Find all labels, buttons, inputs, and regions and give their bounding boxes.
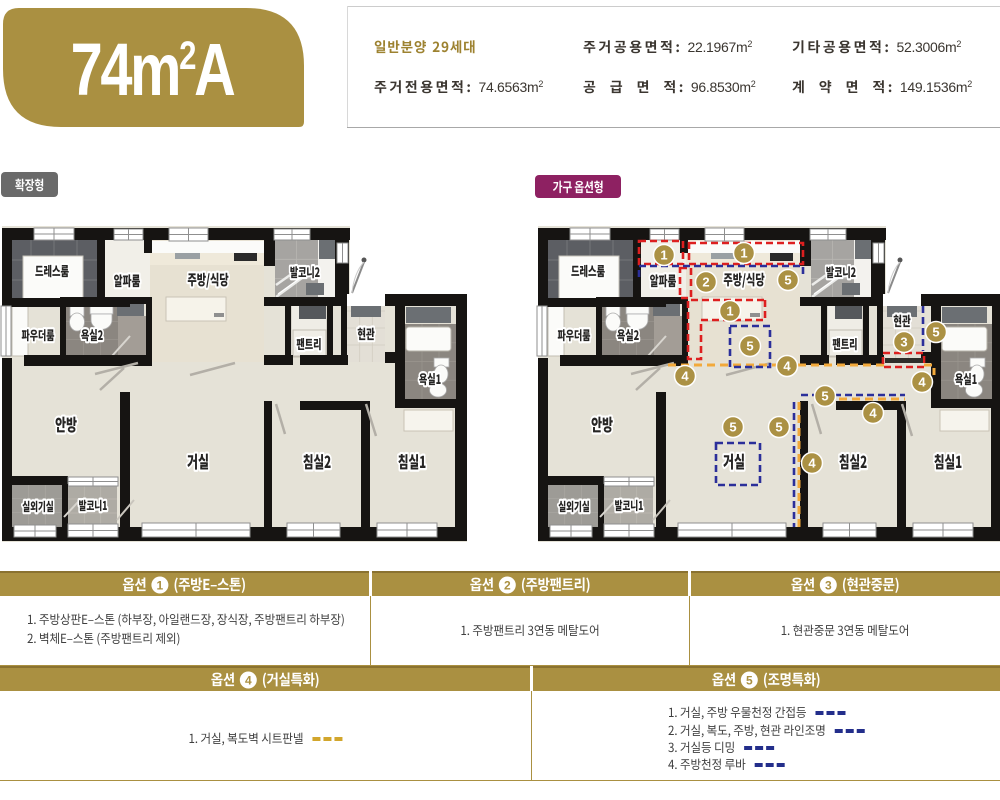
svg-text:5: 5 xyxy=(729,420,736,435)
svg-text:1: 1 xyxy=(726,304,733,319)
svg-text:96.8530m2: 96.8530m2 xyxy=(691,79,756,95)
svg-text:149.1536m2: 149.1536m2 xyxy=(900,79,972,95)
svg-text:52.3006m2: 52.3006m2 xyxy=(897,39,962,55)
svg-text:1: 1 xyxy=(740,246,747,261)
svg-text:4: 4 xyxy=(783,359,791,374)
svg-text:4: 4 xyxy=(918,375,926,390)
svg-text:3: 3 xyxy=(900,335,907,350)
svg-text:22.1967m2: 22.1967m2 xyxy=(688,39,753,55)
svg-text:1: 1 xyxy=(660,248,667,263)
svg-text:5: 5 xyxy=(775,420,782,435)
svg-text:74.6563m2: 74.6563m2 xyxy=(479,79,544,95)
svg-text:5: 5 xyxy=(932,325,939,340)
svg-text:5: 5 xyxy=(784,273,791,288)
svg-text:74m2A: 74m2A xyxy=(71,29,235,112)
svg-text:2: 2 xyxy=(504,579,511,593)
svg-text:5: 5 xyxy=(821,389,828,404)
svg-text:4: 4 xyxy=(869,406,877,421)
svg-text:1: 1 xyxy=(157,579,164,593)
svg-text:4: 4 xyxy=(681,369,689,384)
svg-text:5: 5 xyxy=(746,339,753,354)
svg-text:5: 5 xyxy=(746,674,753,688)
svg-text:2: 2 xyxy=(702,275,709,290)
svg-text:4: 4 xyxy=(808,456,816,471)
svg-text:4: 4 xyxy=(245,674,252,688)
svg-text:3: 3 xyxy=(825,579,832,593)
